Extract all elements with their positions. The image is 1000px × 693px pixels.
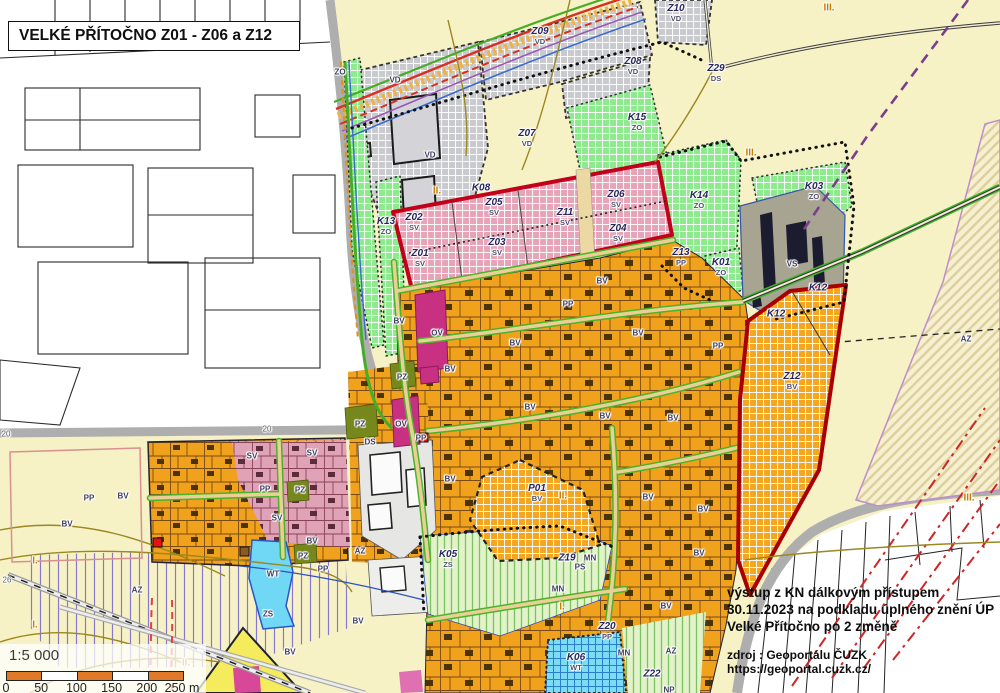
info-box: výstup z KN dálkovým přístupem 30.11.202…: [727, 584, 999, 676]
info-line-1: výstup z KN dálkovým přístupem: [727, 584, 999, 601]
info-line-3: Velké Přítočno po 2 změně: [727, 618, 999, 635]
water-k06: [545, 632, 626, 693]
scale-tick: 50: [34, 681, 48, 693]
map-title: VELKÉ PŘÍTOČNO Z01 - Z06 a Z12: [19, 27, 272, 45]
map-title-box: VELKÉ PŘÍTOČNO Z01 - Z06 a Z12: [8, 21, 300, 51]
scale-box: 1:5 000 050100150200250 m: [0, 644, 206, 693]
info-source: zdroj : Geoportálu ČUZK https://geoporta…: [727, 648, 999, 676]
scale-tick: 0: [3, 681, 10, 693]
scale-tick: 200: [136, 681, 157, 693]
scale-tick: 100: [66, 681, 87, 693]
scale-tick: 250 m: [165, 681, 200, 693]
scale-bar: [6, 671, 184, 681]
scale-tick: 150: [101, 681, 122, 693]
zoning-map: Z10VDZ09VDZ08VDK15ZOZ07VDZ29DSK03ZOK14ZO…: [0, 0, 1000, 693]
scale-ratio: 1:5 000: [9, 647, 59, 664]
info-line-2: 30.11.2023 na podkladu úplného znění ÚP: [727, 601, 999, 618]
scale-ticks: 050100150200250 m: [6, 681, 246, 693]
